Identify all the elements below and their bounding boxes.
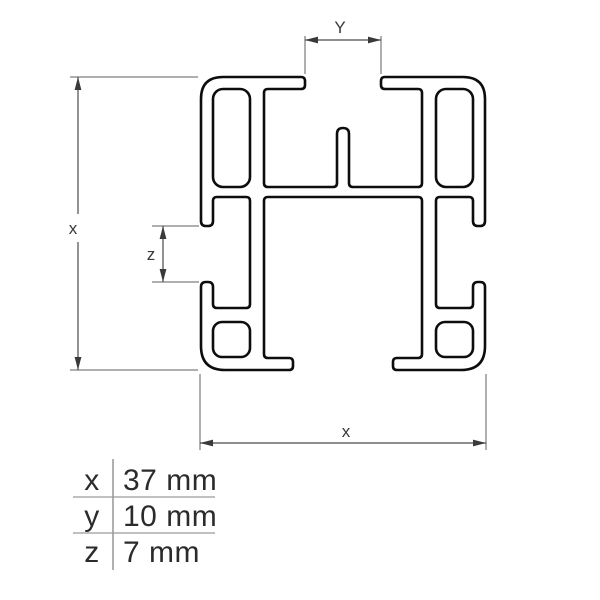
profile-cross-section: [201, 77, 485, 370]
dimension-y-arrow-left: [305, 37, 318, 44]
dimension-x-left: x: [69, 77, 198, 370]
dimension-y: Y: [305, 18, 381, 74]
dimension-x-left-arrow-top: [75, 77, 82, 90]
profile-outline: [201, 77, 485, 370]
legend-row-x-symbol: x: [84, 464, 100, 497]
dimension-z-label: z: [147, 245, 156, 264]
diagram-canvas: Y x z x x 37 mm y: [0, 0, 600, 600]
legend-row-y: y 10 mm: [84, 500, 217, 533]
chamber-bottom-left: [213, 322, 250, 357]
dimension-y-arrow-right: [368, 37, 381, 44]
dimension-y-label: Y: [334, 18, 345, 37]
legend-row-z-symbol: z: [84, 536, 100, 569]
legend-row-y-value: 10 mm: [123, 500, 217, 533]
legend-row-z: z 7 mm: [84, 536, 200, 569]
legend-row-y-symbol: y: [84, 500, 100, 533]
legend-table: x 37 mm y 10 mm z 7 mm: [73, 459, 217, 570]
dimension-z: z: [147, 226, 199, 282]
legend-row-z-value: 7 mm: [123, 536, 200, 569]
dimension-z-arrow-bottom: [160, 269, 167, 282]
dimension-x-bottom-arrow-right: [473, 440, 486, 447]
dimension-x-bottom-label: x: [342, 422, 351, 441]
chamber-bottom-right: [436, 322, 473, 357]
dimension-z-arrow-top: [160, 226, 167, 239]
legend-row-x-value: 37 mm: [123, 464, 217, 497]
chamber-top-left: [213, 89, 250, 187]
dimension-x-left-arrow-bottom: [75, 357, 82, 370]
dimension-x-bottom: x: [200, 374, 486, 450]
legend-row-x: x 37 mm: [84, 464, 217, 497]
dimension-x-bottom-arrow-left: [200, 440, 213, 447]
chamber-top-right: [436, 89, 473, 187]
dimension-x-left-label: x: [69, 219, 78, 238]
